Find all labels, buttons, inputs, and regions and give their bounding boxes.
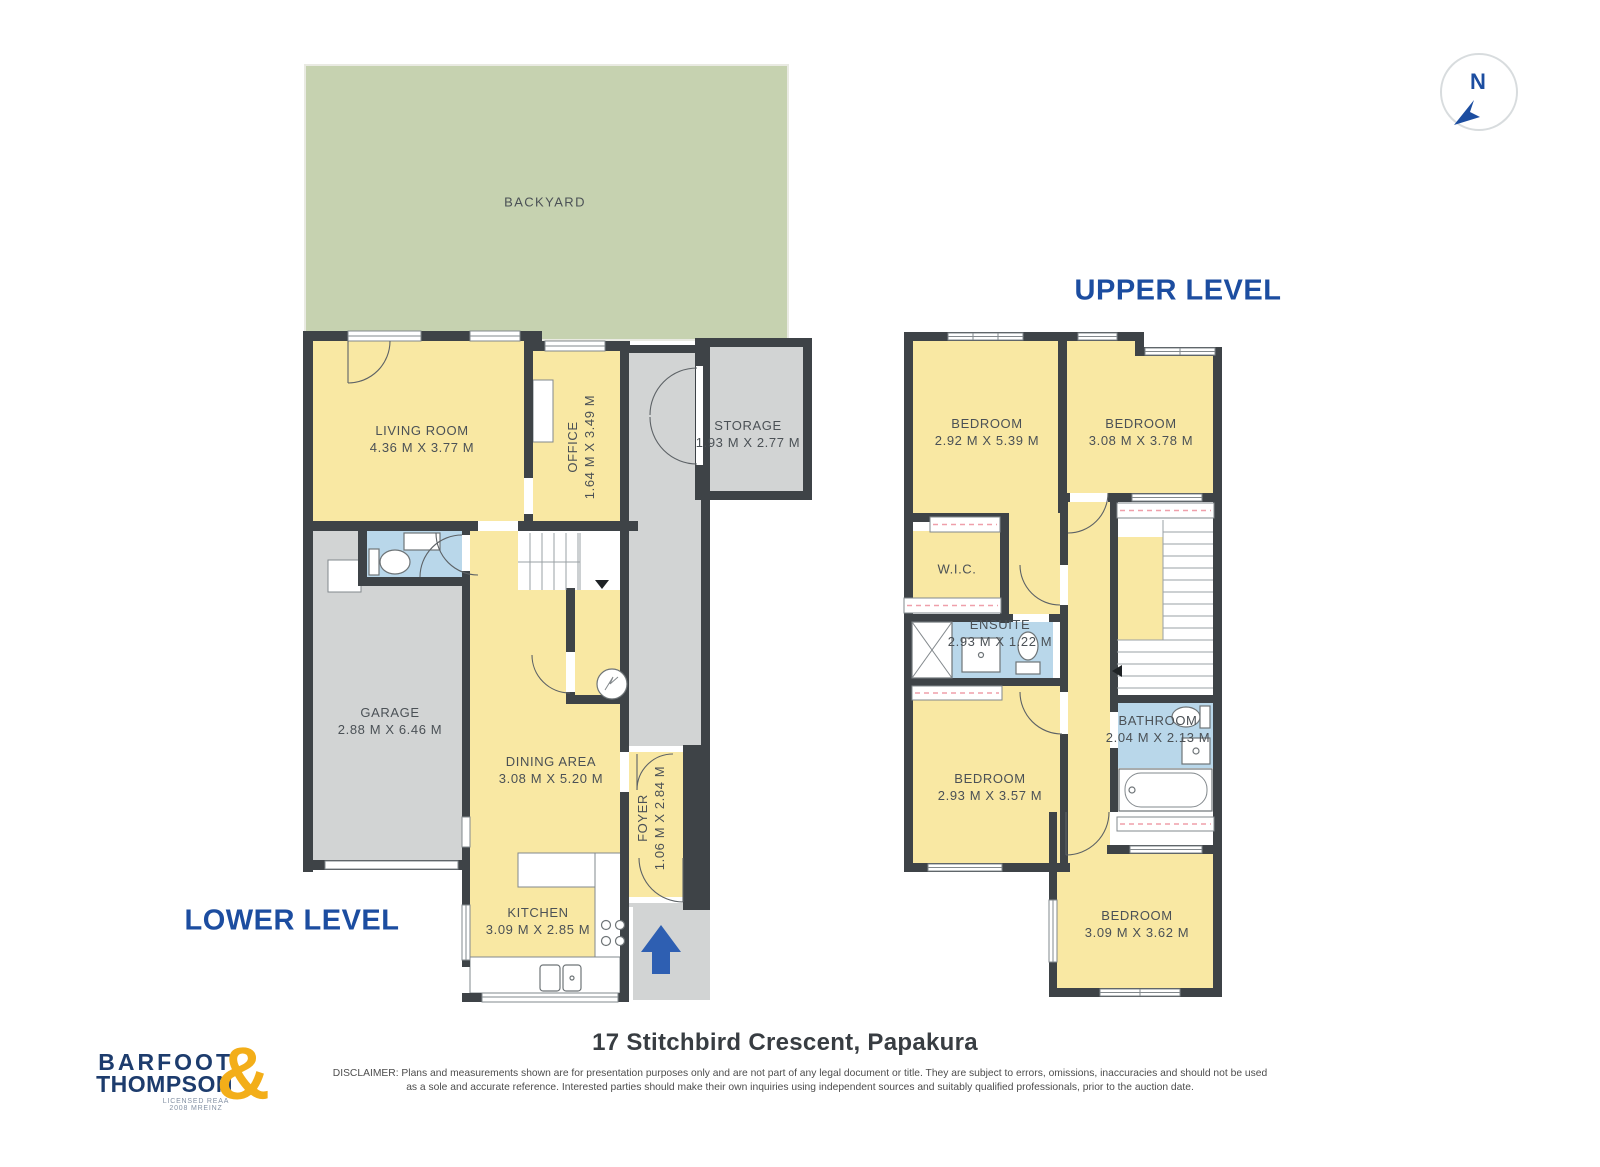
room-label-ensuite: ENSUITE 2.93 M X 1.22 M	[948, 616, 1052, 650]
room-label-storage: STORAGE 1.93 M X 2.77 M	[696, 417, 800, 451]
north-compass: N	[1440, 53, 1518, 131]
floor-plan-graphic	[0, 0, 1600, 1167]
room-label-wic: W.I.C.	[938, 561, 977, 578]
barfoot-thompson-logo: BARFOOT THOMPSON & LICENSED REAA 2008 MR…	[60, 1051, 233, 1112]
floor-plan-page: BACKYARD LIVING ROOM 4.36 M X 3.77 M OFF…	[0, 0, 1600, 1167]
property-address: 17 Stitchbird Crescent, Papakura	[445, 1029, 1125, 1057]
north-arrow-icon	[1453, 98, 1483, 128]
room-label-kitchen: KITCHEN 3.09 M X 2.85 M	[486, 904, 590, 938]
disclaimer-text: DISCLAIMER: Plans and measurements shown…	[330, 1067, 1270, 1094]
room-label-bathroom: BATHROOM 2.04 M X 2.13 M	[1106, 712, 1210, 746]
room-label-garage: GARAGE 2.88 M X 6.46 M	[338, 704, 442, 738]
room-label-bedroom-3: BEDROOM 2.93 M X 3.57 M	[938, 770, 1042, 804]
lower-level-title: LOWER LEVEL	[185, 905, 400, 938]
room-label-bedroom-2: BEDROOM 3.08 M X 3.78 M	[1089, 415, 1193, 449]
logo-line2: THOMPSON	[60, 1073, 233, 1095]
room-label-living-room: LIVING ROOM 4.36 M X 3.77 M	[370, 422, 474, 456]
room-label-bedroom-1: BEDROOM 2.92 M X 5.39 M	[935, 415, 1039, 449]
north-label: N	[1470, 69, 1486, 95]
room-label-foyer: FOYER 1.06 M X 2.84 M	[634, 766, 668, 870]
room-label-bedroom-4: BEDROOM 3.09 M X 3.62 M	[1085, 907, 1189, 941]
water-heater-icon	[597, 669, 627, 699]
logo-line1: BARFOOT	[60, 1051, 233, 1073]
room-label-office: OFFICE 1.64 M X 3.49 M	[564, 395, 598, 499]
upper-level-title: UPPER LEVEL	[1075, 275, 1282, 308]
logo-ampersand: &	[217, 1044, 270, 1104]
room-label-backyard: BACKYARD	[504, 194, 586, 211]
room-label-dining-area: DINING AREA 3.08 M X 5.20 M	[499, 753, 603, 787]
